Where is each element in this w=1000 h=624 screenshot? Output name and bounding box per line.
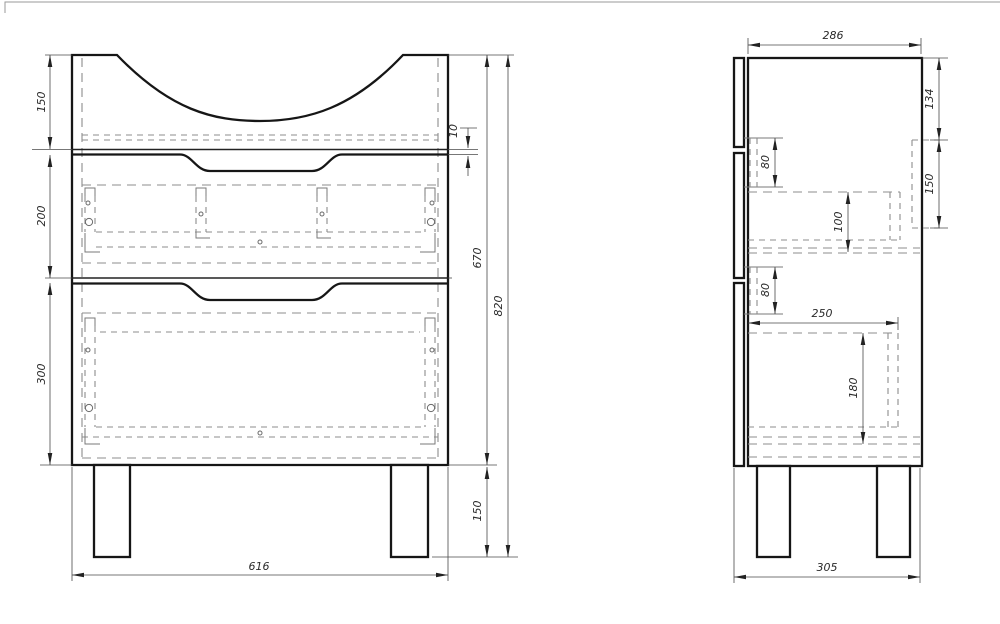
dim-label-front-top-section: 150 (35, 92, 48, 113)
side-body-outline (748, 58, 922, 466)
dim-label-side-box2-height: 180 (847, 378, 860, 399)
side-top-panel-edge (734, 58, 744, 147)
dim-label-side-depth: 286 (823, 29, 844, 42)
side-drawer1-front-edge (734, 153, 744, 278)
dim-label-side-box2-depth: 250 (812, 307, 833, 320)
dim-side-top-offset: 134 (923, 58, 939, 140)
dim-label-front-gap: 10 (447, 124, 460, 138)
side-back-leg (877, 466, 910, 557)
dim-label-front-body-height: 670 (471, 248, 484, 269)
drawing-svg: 150 200 300 10 670 820 150 616 (0, 0, 1000, 624)
dim-front-total-height: 820 (492, 55, 508, 557)
dim-label-side-rail: 150 (923, 174, 936, 195)
dim-side-rail: 150 (923, 140, 939, 228)
dim-side-total-depth: 305 (734, 561, 920, 577)
dim-label-front-total-height: 820 (492, 296, 505, 317)
dim-label-front-drawer1: 200 (35, 206, 48, 227)
dim-label-side-box1: 100 (832, 212, 845, 233)
front-right-leg (391, 465, 428, 557)
dim-label-side-top-offset: 134 (923, 89, 936, 110)
dim-label-side-slide1: 80 (759, 155, 772, 169)
front-left-leg (94, 465, 130, 557)
dim-front-top-section: 150 (35, 55, 50, 149)
dim-label-side-slide2: 80 (759, 283, 772, 297)
dim-front-width: 616 (72, 560, 448, 575)
dim-front-legs: 150 (471, 467, 487, 557)
side-front-panels (734, 58, 744, 466)
dim-front-drawer2: 300 (35, 283, 50, 465)
front-view (72, 55, 448, 557)
dim-front-gap: 10 (447, 124, 468, 176)
side-legs (757, 466, 910, 557)
drawing-frame (5, 2, 1000, 13)
dim-front-body-height: 670 (471, 55, 487, 465)
technical-drawing-canvas: 150 200 300 10 670 820 150 616 (0, 0, 1000, 624)
frame-border-line (5, 2, 1000, 13)
dim-label-front-legs: 150 (471, 501, 484, 522)
dim-label-front-width: 616 (249, 560, 270, 573)
dim-label-side-total-depth: 305 (817, 561, 838, 574)
front-body-outline (72, 55, 448, 465)
side-drawer2-front-edge (734, 283, 744, 466)
side-front-leg (757, 466, 790, 557)
front-legs (94, 465, 428, 557)
side-view (734, 58, 941, 557)
dim-label-front-drawer2: 300 (35, 364, 48, 385)
dim-side-depth: 286 (748, 29, 921, 45)
dim-front-drawer1: 200 (35, 155, 50, 278)
